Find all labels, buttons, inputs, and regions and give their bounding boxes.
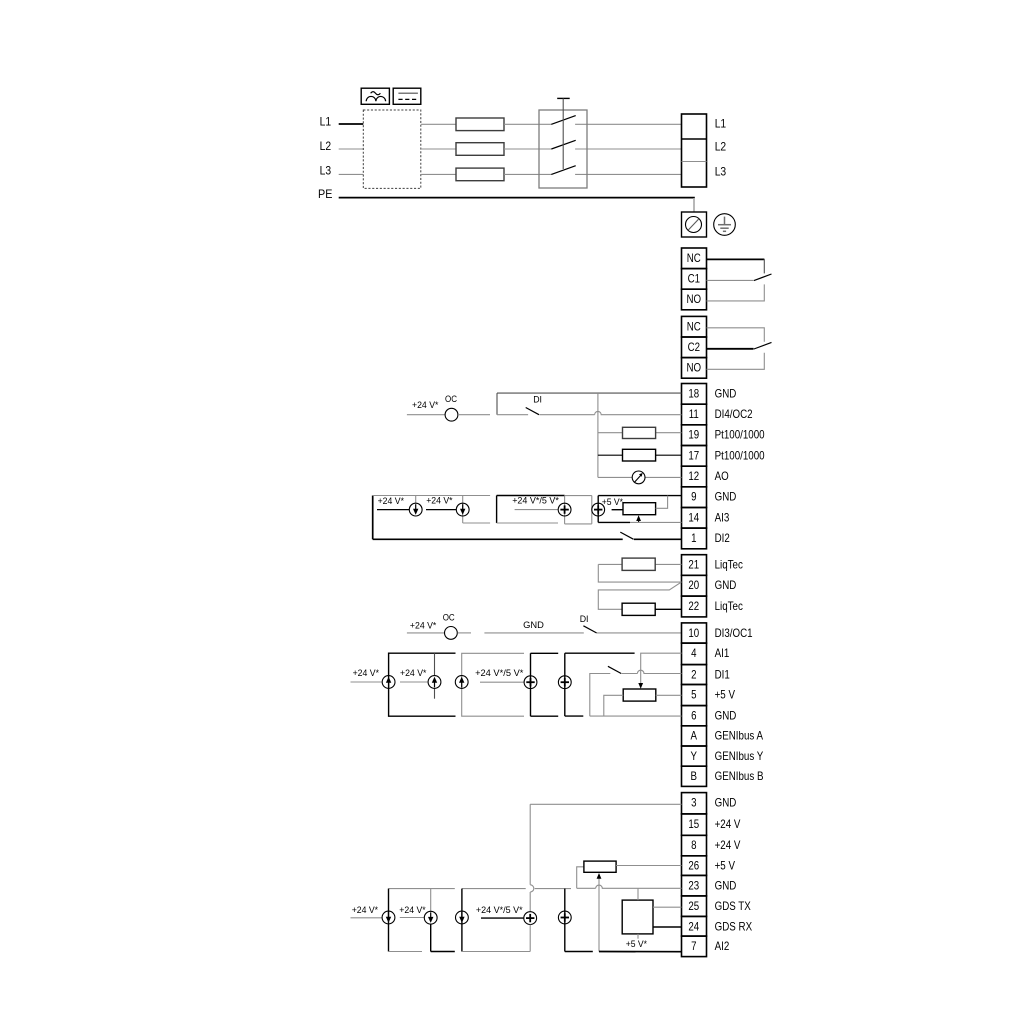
svg-text:GDS TX: GDS TX (715, 899, 751, 913)
svg-text:+24 V*/5 V*: +24 V*/5 V* (476, 905, 523, 915)
svg-text:L2: L2 (320, 139, 332, 153)
svg-text:GND: GND (715, 386, 737, 400)
svg-text:GENIbus A: GENIbus A (715, 729, 763, 743)
svg-text:20: 20 (688, 578, 699, 592)
svg-text:14: 14 (688, 510, 699, 524)
svg-text:+24 V*: +24 V* (399, 905, 426, 915)
svg-text:GND: GND (523, 620, 544, 630)
svg-text:AI3: AI3 (715, 510, 730, 524)
svg-text:2: 2 (691, 668, 697, 682)
svg-text:3: 3 (691, 796, 697, 810)
svg-text:DI: DI (580, 614, 589, 624)
svg-text:B: B (691, 769, 698, 783)
svg-text:24: 24 (688, 919, 699, 933)
svg-text:DI2: DI2 (715, 531, 730, 545)
svg-text:+5 V: +5 V (715, 859, 735, 873)
svg-text:17: 17 (688, 448, 699, 462)
svg-text:26: 26 (688, 859, 699, 873)
svg-text:1: 1 (691, 531, 697, 545)
svg-text:GND: GND (715, 578, 737, 592)
svg-text:L3: L3 (320, 163, 332, 177)
svg-text:+5 V*: +5 V* (602, 497, 624, 507)
svg-text:AI2: AI2 (715, 939, 730, 953)
svg-text:Pt100/1000: Pt100/1000 (715, 448, 765, 462)
svg-text:5: 5 (691, 687, 697, 701)
svg-text:L2: L2 (715, 139, 727, 153)
svg-text:GENIbus Y: GENIbus Y (715, 749, 764, 763)
svg-text:+5 V: +5 V (715, 687, 735, 701)
svg-text:+24 V*: +24 V* (426, 495, 453, 505)
svg-text:7: 7 (691, 939, 697, 953)
svg-text:GENIbus B: GENIbus B (715, 769, 764, 783)
svg-text:+24 V: +24 V (715, 838, 741, 852)
svg-text:DI: DI (533, 395, 542, 405)
svg-text:8: 8 (691, 838, 697, 852)
svg-text:+24 V*/5 V*: +24 V*/5 V* (475, 668, 524, 678)
svg-text:21: 21 (688, 558, 699, 572)
svg-text:GND: GND (715, 878, 737, 892)
svg-text:15: 15 (688, 817, 699, 831)
svg-text:+24 V: +24 V (715, 817, 741, 831)
svg-text:PE: PE (318, 187, 332, 201)
svg-text:DI3/OC1: DI3/OC1 (715, 626, 753, 640)
svg-text:GND: GND (715, 490, 737, 504)
svg-text:A: A (691, 729, 698, 743)
svg-text:12: 12 (688, 469, 699, 483)
svg-text:+24 V*/5 V*: +24 V*/5 V* (512, 495, 559, 505)
svg-text:23: 23 (688, 878, 699, 892)
svg-text:OC: OC (445, 394, 457, 404)
svg-text:22: 22 (688, 599, 699, 613)
svg-text:NC: NC (687, 251, 701, 265)
svg-text:NO: NO (687, 292, 702, 306)
svg-text:C1: C1 (688, 272, 701, 286)
svg-text:+24 V*: +24 V* (400, 668, 427, 678)
svg-text:NO: NO (687, 361, 702, 375)
svg-text:L1: L1 (320, 114, 332, 128)
svg-text:6: 6 (691, 709, 697, 723)
svg-text:9: 9 (691, 490, 697, 504)
svg-text:+24 V*: +24 V* (353, 668, 380, 678)
svg-text:GDS RX: GDS RX (715, 919, 753, 933)
svg-text:4: 4 (691, 646, 697, 660)
svg-text:LiqTec: LiqTec (715, 558, 743, 572)
svg-text:10: 10 (688, 626, 699, 640)
svg-text:+24 V*: +24 V* (378, 496, 405, 506)
svg-text:+24 V*: +24 V* (412, 400, 439, 410)
svg-text:+24 V*: +24 V* (352, 905, 379, 915)
svg-text:AI1: AI1 (715, 646, 730, 660)
svg-text:+5 V*: +5 V* (626, 939, 648, 949)
svg-text:18: 18 (688, 386, 699, 400)
svg-text:L1: L1 (715, 117, 727, 131)
svg-text:NC: NC (687, 319, 701, 333)
svg-text:AO: AO (715, 469, 729, 483)
svg-text:25: 25 (688, 899, 699, 913)
svg-text:GND: GND (715, 796, 737, 810)
svg-text:19: 19 (688, 428, 699, 442)
svg-text:LiqTec: LiqTec (715, 599, 743, 613)
svg-text:11: 11 (689, 407, 699, 421)
svg-text:OC: OC (443, 612, 455, 622)
svg-text:DI1: DI1 (715, 668, 730, 682)
svg-text:+24 V*: +24 V* (410, 621, 437, 631)
svg-text:GND: GND (715, 709, 737, 723)
svg-text:C2: C2 (688, 340, 701, 354)
svg-text:Pt100/1000: Pt100/1000 (715, 428, 765, 442)
svg-text:Y: Y (691, 749, 698, 763)
svg-text:L3: L3 (715, 165, 727, 179)
svg-text:DI4/OC2: DI4/OC2 (715, 407, 753, 421)
